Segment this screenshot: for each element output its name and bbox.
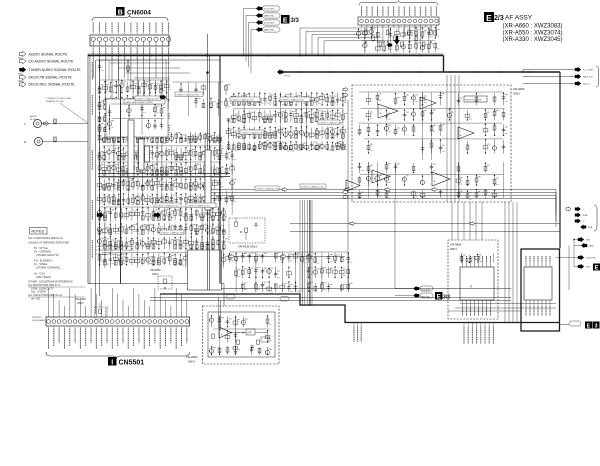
svg-text:2 CIRCUIT PLUGS (LINE: 2 CIRCUIT PLUGS (LINE: [46, 98, 71, 100]
svg-text:SUB BOARD: SUB BOARD: [32, 319, 45, 322]
svg-text:DECK REC SIGNAL ROUTE: DECK REC SIGNAL ROUTE: [29, 83, 76, 87]
svg-text:MAIN GND: MAIN GND: [421, 295, 431, 298]
svg-text:1:SELECT+LABEL&LOGIC: 1:SELECT+LABEL&LOGIC: [319, 121, 343, 124]
svg-text:XR-A550: XR-A550: [150, 268, 161, 272]
svg-text:ALL RESISTORS ARE IN O: ALL RESISTORS ARE IN O: [28, 283, 60, 287]
svg-text:3:IN/XR-A330 (SINGLE LEAD): 3:IN/XR-A330 (SINGLE LEAD): [96, 253, 126, 256]
svg-text:LPF: LPF: [247, 332, 252, 335]
svg-text:M+12 B/HD: M+12 B/HD: [264, 23, 275, 25]
svg-text:GND: GND: [586, 240, 591, 242]
svg-text:IN L/R: IN L/R: [30, 119, 37, 121]
svg-text:ONLY: ONLY: [450, 247, 458, 251]
svg-text:+: +: [380, 112, 382, 116]
svg-text:PB: PB: [19, 73, 23, 76]
svg-text:KL : STEEL: KL : STEEL: [34, 262, 48, 266]
svg-text:MAIN GND: MAIN GND: [264, 15, 275, 18]
svg-text:6V : CERAMIC: 6V : CERAMIC: [34, 249, 51, 253]
svg-text:AF ASSY: AF ASSY: [505, 15, 533, 22]
svg-text:E: E: [283, 17, 288, 24]
svg-text:FROM/TO: FROM/TO: [32, 317, 42, 319]
svg-text:BGA: BGA: [588, 226, 593, 229]
svg-text:ONLY: ONLY: [152, 272, 159, 276]
svg-text:BGA: BGA: [583, 214, 588, 217]
svg-text:E: E: [594, 265, 598, 271]
svg-text:E: E: [437, 294, 441, 300]
svg-text:1:SELECT+LABEL&LOGIC: 1:SELECT+LABEL&LOGIC: [241, 131, 265, 134]
svg-text:GAIN+/CABLE SELECT SW/PLL: GAIN+/CABLE SELECT SW/PLL: [126, 101, 154, 104]
svg-text:(XR-A660 : XWZ3083): (XR-A660 : XWZ3083): [503, 24, 563, 30]
svg-text:E: E: [587, 323, 591, 329]
svg-text:1:SELECT+LABEL&LOGIC: 1:SELECT+LABEL&LOGIC: [301, 185, 325, 188]
svg-text:(XR-A330 : XWZ3045): (XR-A330 : XWZ3045): [503, 37, 563, 43]
svg-text:ONLY: ONLY: [513, 92, 521, 96]
svg-text:XR-A330 ONLY: XR-A330 ONLY: [238, 245, 258, 249]
svg-text:1:SELECT+LABEL&LOGIC: 1:SELECT+LABEL&LOGIC: [176, 93, 200, 96]
svg-text:1:SELECT+LABEL&LOGIC: 1:SELECT+LABEL&LOGIC: [136, 97, 160, 100]
svg-text:UNLESS OTHERWISE SPECIFIED: UNLESS OTHERWISE SPECIFIED: [28, 241, 69, 245]
svg-text:TO/TL: TO/TL: [284, 76, 291, 78]
svg-text:1:SELECT+LABEL&LOGIC: 1:SELECT+LABEL&LOGIC: [256, 187, 280, 190]
svg-text:3: 3: [594, 323, 597, 329]
svg-text:AUDIO SIGNAL ROUTE: AUDIO SIGNAL ROUTE: [29, 52, 69, 56]
svg-text:XR-A660: XR-A660: [450, 243, 462, 247]
svg-text:MAIN GND: MAIN GND: [264, 29, 275, 32]
svg-text:IC: IC: [469, 285, 473, 288]
svg-text:B: B: [118, 9, 123, 16]
svg-text:XR-A660: XR-A660: [186, 355, 198, 359]
svg-text:ONLY: ONLY: [188, 360, 196, 364]
svg-text:TUNER AUDIO SIGNAL ROUTE: TUNER AUDIO SIGNAL ROUTE: [29, 68, 82, 72]
svg-text:OTHER : DISCERNING/DIFFERENCE: OTHER : DISCERNING/DIFFERENCE: [28, 279, 73, 283]
svg-text:BACK STK: BACK STK: [583, 76, 594, 79]
svg-text:(XR-A550 : XWZ3074): (XR-A550 : XWZ3074): [503, 30, 563, 36]
svg-text:PLATED) (IN L/R): PLATED) (IN L/R): [46, 100, 64, 103]
svg-text:SW+12: SW+12: [583, 84, 591, 86]
svg-text:3/3: 3/3: [291, 18, 300, 24]
svg-text:+: +: [221, 333, 223, 337]
svg-text:DATA: DATA: [589, 245, 595, 248]
svg-text:1:SELECT+LABEL&LOGIC: 1:SELECT+LABEL&LOGIC: [231, 98, 255, 101]
svg-text:E: E: [486, 13, 492, 23]
svg-text:AND TRANS: AND TRANS: [36, 275, 51, 279]
svg-text:AUDIO: AUDIO: [30, 115, 37, 118]
svg-text:2/3: 2/3: [494, 15, 504, 22]
svg-text:AL : COIL: AL : COIL: [34, 271, 46, 275]
svg-text:2:IN/XR-A550 (MULTIPLAYING LEA: 2:IN/XR-A550 (MULTIPLAYING LEAD): [96, 249, 134, 252]
svg-text:M+12 B/HD: M+12 B/HD: [264, 9, 275, 11]
svg-text:1:SELECT+LABEL&LOGIC: 1:SELECT+LABEL&LOGIC: [281, 98, 305, 101]
svg-text:MUTE S.LATCH: MUTE S.LATCH: [466, 99, 482, 102]
svg-text:ALL: 1/16WC: ALL: 1/16WC: [31, 290, 47, 294]
svg-text:SYSL/OFF: SYSL/OFF: [586, 258, 596, 260]
svg-text:REC: REC: [19, 80, 24, 83]
svg-text:1:SELECT+LABEL&LOGIC: 1:SELECT+LABEL&LOGIC: [187, 204, 211, 207]
svg-text:NOTES: NOTES: [32, 230, 45, 234]
svg-text:CD: CD: [19, 57, 23, 60]
svg-text:M+12 B/HD: M+12 B/HD: [421, 289, 431, 291]
svg-text:1:SELECT+LABEL&LOGIC: 1:SELECT+LABEL&LOGIC: [156, 204, 180, 207]
svg-text:CN5501: CN5501: [119, 360, 145, 367]
svg-text:(OTHER: CERAMIC): (OTHER: CERAMIC): [36, 265, 60, 269]
svg-text:5V : STYLE: 5V : STYLE: [34, 246, 48, 250]
svg-text:I: I: [111, 359, 113, 366]
svg-text:CN6004: CN6004: [127, 10, 151, 17]
svg-text:KD : ELEMENT: KD : ELEMENT: [34, 259, 52, 263]
svg-text:+: +: [434, 180, 436, 184]
svg-text:DECK PB SIGNAL ROUTE: DECK PB SIGNAL ROUTE: [29, 76, 73, 80]
svg-text:+: +: [460, 134, 462, 138]
svg-text:XR-A660: XR-A660: [513, 87, 525, 91]
svg-text:F+12 STBY: F+12 STBY: [583, 70, 594, 72]
svg-text:CD AUDIO SIGNAL ROUTE: CD AUDIO SIGNAL ROUTE: [29, 60, 75, 64]
svg-text:GND: GND: [586, 267, 591, 269]
svg-text:(OTHER: ELECTR.): (OTHER: ELECTR.): [36, 253, 59, 257]
svg-text:1:SELECT+LABEL&LOGIC: 1:SELECT+LABEL&LOGIC: [161, 231, 185, 234]
svg-text:ALL CAPACITORS ARE IN uF: ALL CAPACITORS ARE IN uF: [28, 236, 63, 240]
svg-text:3/3: 3/3: [443, 295, 450, 301]
